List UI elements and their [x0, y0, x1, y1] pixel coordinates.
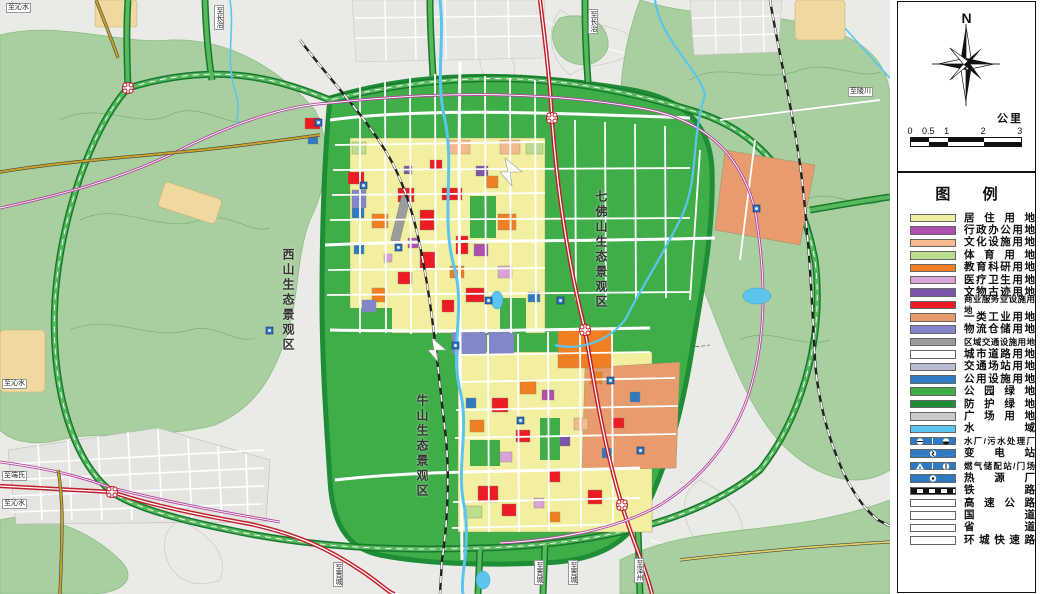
gas-gate-icon: [941, 462, 951, 471]
gas-storage-icon: [915, 462, 925, 471]
legend-item-label: 环城快速路: [964, 535, 1035, 546]
legend-item: 燃气储配站/门场: [898, 460, 1035, 472]
legend-swatch: [910, 264, 956, 273]
legend-item: 交通场站用地: [898, 361, 1035, 373]
legend-swatch: [910, 276, 956, 285]
legend-item: 水厂/污水处理厂: [898, 435, 1035, 447]
legend-swatch: [910, 214, 956, 223]
legend-swatch: [910, 375, 956, 384]
legend-swatch: [910, 524, 956, 533]
legend-title: 图 例: [898, 183, 1035, 204]
legend-item: 教育科研用地: [898, 262, 1035, 274]
legend-swatch: [910, 350, 956, 359]
legend-box: 图 例 居住用地行政办公用地文化设施用地体育用地教育科研用地医疗卫生用地文物古迹…: [897, 172, 1036, 593]
legend-swatch: [910, 449, 956, 458]
legend-item: 公园绿地: [898, 385, 1035, 397]
side-panel: N 公里 00.5123: [890, 0, 1043, 594]
legend-item-label: 变电站: [964, 448, 1035, 459]
legend-item: 城市道路用地: [898, 348, 1035, 360]
legend-swatch: [910, 474, 956, 483]
legend-item: 公用设施用地: [898, 373, 1035, 385]
scale-tick: 0: [907, 126, 912, 136]
legend-swatch: [910, 387, 956, 396]
legend-item-label: 水域: [964, 423, 1035, 434]
legend-item: 区域交通设施用地: [898, 336, 1035, 348]
city-master-plan-map: 西山生态景观区七佛山生态景观区牛山生态景观区至沁水至长治至长治至陵川至沁水至端氏…: [0, 0, 890, 594]
scale-bar-graphic: [910, 137, 1022, 147]
legend-item: 防护绿地: [898, 398, 1035, 410]
town-grid-top-center: [352, 0, 545, 62]
heat-plant-icon: [928, 474, 938, 483]
legend-item-label: 文化设施用地: [964, 237, 1035, 248]
legend-swatch: [910, 536, 956, 545]
legend-item: 医疗卫生用地: [898, 274, 1035, 286]
legend-item: 热源厂: [898, 472, 1035, 484]
legend-item-label: 行政办公用地: [964, 225, 1035, 236]
legend-list: 居住用地行政办公用地文化设施用地体育用地教育科研用地医疗卫生用地文物古迹用地商业…: [898, 212, 1035, 547]
legend-item: 环城快速路: [898, 534, 1035, 546]
legend-swatch: [910, 511, 956, 520]
legend-item: 一类工业用地: [898, 311, 1035, 323]
legend-item: 省道: [898, 522, 1035, 534]
map-canvas: [0, 0, 890, 594]
legend-swatch: [910, 499, 956, 508]
legend-swatch: [910, 363, 956, 372]
legend-swatch: [910, 325, 956, 334]
north-scale-box: N 公里 00.5123: [897, 1, 1036, 172]
legend-item-label: 燃气储配站/门场: [964, 461, 1035, 472]
legend-item: 国道: [898, 509, 1035, 521]
water-plant-icon: [915, 437, 925, 446]
scale-tick-labels: 00.5123: [910, 126, 1022, 137]
legend-swatch: [910, 288, 956, 297]
legend-item: 高速公路: [898, 497, 1035, 509]
legend-item-label: 水厂/污水处理厂: [964, 436, 1035, 447]
scale-unit-label: 公里: [997, 110, 1023, 126]
legend-item: 文化设施用地: [898, 237, 1035, 249]
scale-row-bottom: [911, 142, 1021, 146]
legend-item: 水域: [898, 423, 1035, 435]
legend-swatch: [910, 338, 956, 347]
compass-rose-icon: [926, 20, 1006, 108]
legend-swatch: [910, 462, 956, 471]
legend-item-label: 铁路: [964, 485, 1035, 496]
legend-swatch: [910, 251, 956, 260]
legend-swatch: [910, 226, 956, 235]
scale-tick: 1: [944, 126, 949, 136]
scale-tick: 3: [1017, 126, 1022, 136]
legend-item-label: 热源厂: [964, 473, 1035, 484]
scale-bar: 00.5123: [910, 126, 1022, 162]
legend-item-label: 公园绿地: [964, 386, 1035, 397]
legend-item: 商业服务业设施用地: [898, 299, 1035, 311]
scale-tick: 2: [981, 126, 986, 136]
legend-swatch: [910, 487, 956, 496]
sewage-plant-icon: [941, 437, 951, 446]
legend-item-label: 高速公路: [964, 498, 1035, 509]
legend-swatch: [910, 400, 956, 409]
legend-item: 铁路: [898, 485, 1035, 497]
legend-item: 物流仓储用地: [898, 324, 1035, 336]
legend-item: 居住用地: [898, 212, 1035, 224]
legend-item-label: 医疗卫生用地: [964, 275, 1035, 286]
substation-icon: [928, 449, 938, 458]
railway-pattern: [911, 488, 955, 494]
legend-swatch: [910, 437, 956, 446]
legend-swatch: [910, 313, 956, 322]
legend-item-label: 防护绿地: [964, 399, 1035, 410]
legend-item-label: 体育用地: [964, 250, 1035, 261]
legend-item: 行政办公用地: [898, 224, 1035, 236]
legend-item-label: 居住用地: [964, 213, 1035, 224]
legend-item-label: 公用设施用地: [964, 374, 1035, 385]
legend-item-label: 教育科研用地: [964, 262, 1035, 273]
legend-item-label: 一类工业用地: [964, 312, 1035, 323]
legend-swatch: [910, 425, 956, 434]
legend-item-label: 国道: [964, 510, 1035, 521]
legend-item: 体育用地: [898, 249, 1035, 261]
legend-swatch: [910, 301, 956, 310]
planning-map-screenshot: 西山生态景观区七佛山生态景观区牛山生态景观区至沁水至长治至长治至陵川至沁水至端氏…: [0, 0, 1043, 594]
scale-tick: 0.5: [922, 126, 935, 136]
legend-item-label: 交通场站用地: [964, 361, 1035, 372]
legend-item: 变电站: [898, 447, 1035, 459]
legend-item: 广场用地: [898, 410, 1035, 422]
legend-item-label: 城市道路用地: [964, 349, 1035, 360]
legend-swatch: [910, 239, 956, 248]
legend-item-label: 区域交通设施用地: [964, 337, 1035, 348]
legend-item-label: 广场用地: [964, 411, 1035, 422]
legend-item-label: 物流仓储用地: [964, 324, 1035, 335]
town-grid-top-right: [690, 0, 782, 55]
legend-swatch: [910, 412, 956, 421]
legend-item-label: 省道: [964, 522, 1035, 533]
